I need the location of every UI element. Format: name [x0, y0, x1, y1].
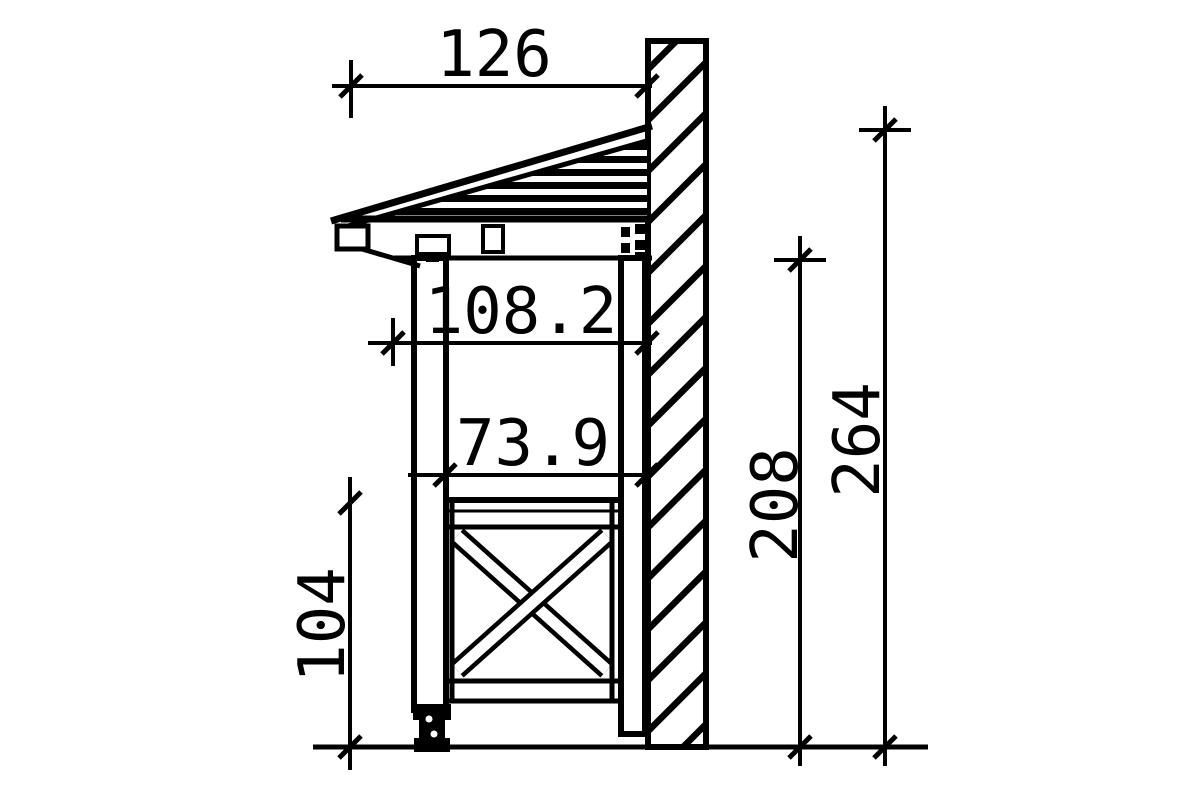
dim-text-canopy-projection: 108.2	[425, 275, 618, 349]
dim-text-clear-height: 208	[739, 447, 813, 563]
dimension-clear-height: 208	[739, 236, 826, 766]
gutter-profile	[337, 226, 368, 249]
dimension-total-height: 264	[821, 106, 911, 766]
canopy-side-elevation: 126 108.2 73.9 104 208 264	[0, 0, 1200, 800]
rafter-hanger-bracket	[417, 236, 449, 254]
dim-text-post-to-wall: 73.9	[456, 407, 610, 481]
dim-text-railing-height: 104	[286, 567, 360, 683]
dim-text-roof-depth: 126	[436, 18, 552, 92]
anchor-screw-hole	[431, 731, 438, 738]
rear-post	[621, 258, 645, 734]
wall-fixing-bracket	[621, 224, 647, 260]
mid-bracket	[483, 226, 503, 252]
cross-brace	[457, 536, 607, 670]
anchor-screw-hole	[426, 716, 433, 723]
bottom-rail	[446, 681, 621, 701]
dimension-railing-height: 104	[286, 477, 361, 770]
wall-section	[648, 41, 706, 747]
handrail	[446, 500, 621, 527]
dimension-roof-depth: 126	[332, 18, 658, 118]
dim-text-total-height: 264	[821, 382, 895, 498]
railing-panel	[446, 500, 621, 703]
roof	[331, 126, 652, 226]
technical-drawing-canvas: 126 108.2 73.9 104 208 264	[0, 0, 1200, 800]
